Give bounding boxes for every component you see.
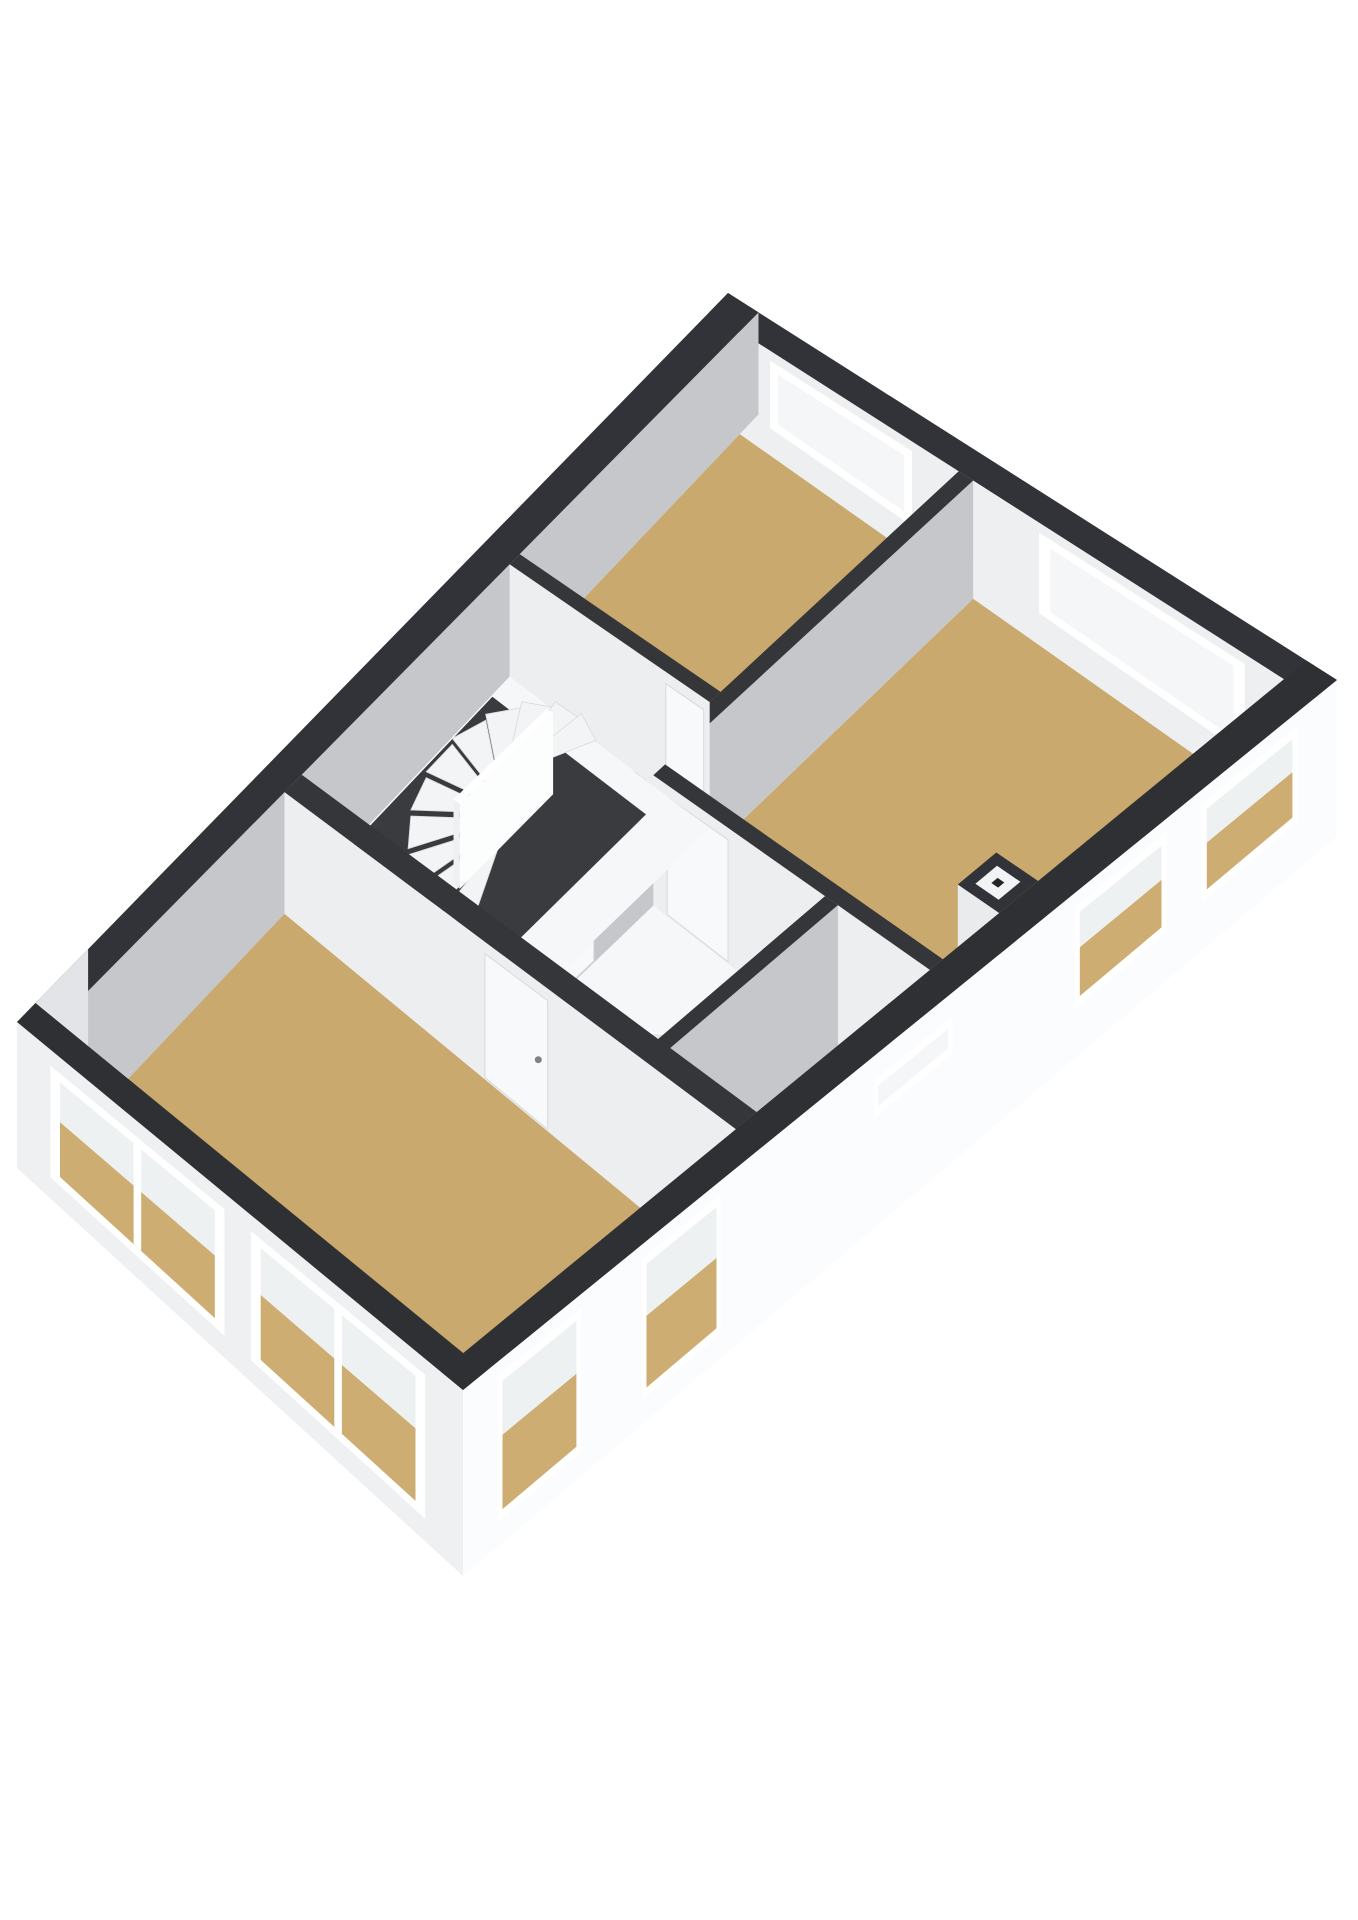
window-master-sw-2-mullion [334,1309,342,1434]
stair-newel-face-b [454,800,460,889]
floorplan-3d-render [0,0,1358,1920]
window-master-sw-1-mullion [134,1143,142,1251]
door-master-handle [535,1056,542,1063]
floorplan-canvas [0,0,1358,1920]
